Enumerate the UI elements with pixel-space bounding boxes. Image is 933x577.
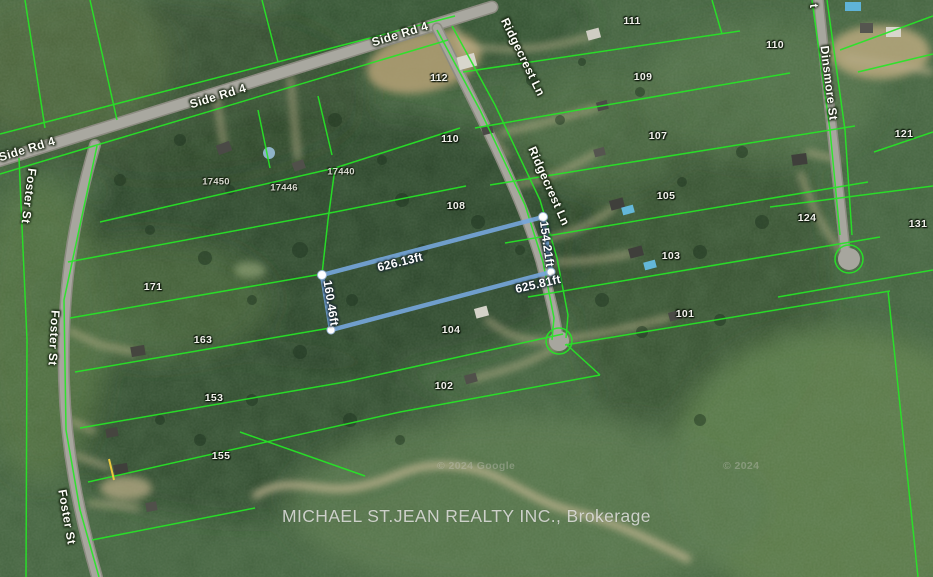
satellite-map-canvas	[0, 0, 933, 577]
satellite-map[interactable]: Side Rd 4 Side Rd 4 Side Rd 4 Foster St …	[0, 0, 933, 577]
pond	[263, 147, 275, 159]
pool	[845, 2, 861, 11]
dinsmore-culdesac-bulb	[838, 248, 860, 270]
